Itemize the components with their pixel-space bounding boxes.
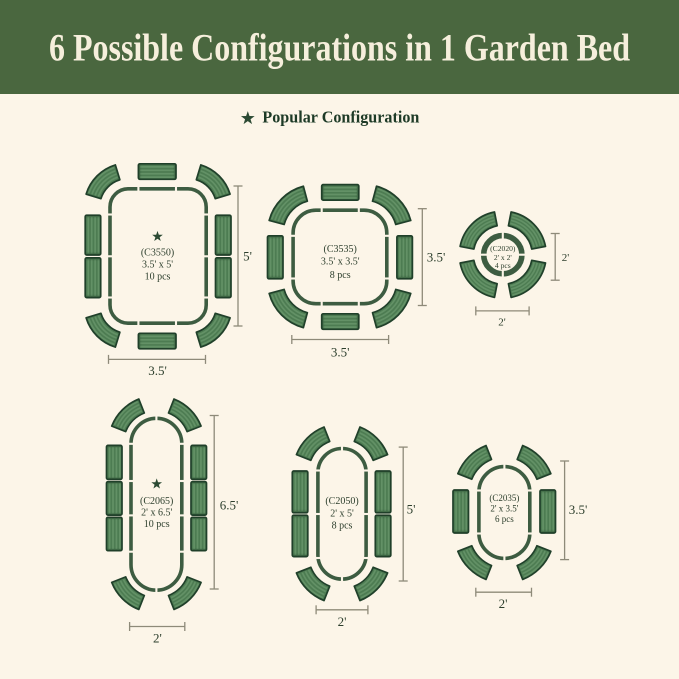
svg-text:3.5': 3.5' — [427, 250, 446, 265]
svg-text:6 Possible Configurations in 1: 6 Possible Configurations in 1 Garden Be… — [49, 26, 630, 69]
svg-text:6.5': 6.5' — [220, 497, 239, 512]
svg-text:10 pcs: 10 pcs — [144, 519, 170, 530]
svg-text:2' x 6.5': 2' x 6.5' — [141, 507, 172, 518]
svg-text:8 pcs: 8 pcs — [332, 520, 353, 531]
svg-text:2' x 5': 2' x 5' — [330, 508, 354, 519]
svg-text:6 pcs: 6 pcs — [495, 514, 514, 524]
svg-text:8 pcs: 8 pcs — [330, 270, 351, 281]
svg-text:3.5' x 5': 3.5' x 5' — [142, 259, 173, 270]
svg-text:4 pcs: 4 pcs — [495, 261, 511, 270]
svg-text:(C2050): (C2050) — [325, 496, 358, 507]
svg-text:2': 2' — [338, 614, 347, 629]
svg-text:3.5': 3.5' — [331, 344, 350, 359]
svg-text:2': 2' — [499, 596, 508, 611]
svg-text:10 pcs: 10 pcs — [145, 271, 171, 282]
svg-text:(C3550): (C3550) — [141, 247, 174, 258]
svg-text:(C2035): (C2035) — [489, 493, 519, 503]
svg-text:2' x 3.5': 2' x 3.5' — [490, 503, 518, 513]
svg-text:3.5' x 3.5': 3.5' x 3.5' — [321, 256, 360, 267]
svg-text:5': 5' — [407, 501, 416, 516]
svg-text:(C3535): (C3535) — [324, 244, 357, 255]
svg-text:5': 5' — [243, 248, 252, 263]
svg-text:Popular Configuration: Popular Configuration — [262, 108, 420, 127]
svg-text:2': 2' — [498, 317, 506, 329]
svg-text:3.5': 3.5' — [569, 502, 588, 517]
svg-text:2': 2' — [562, 252, 570, 264]
svg-text:3.5': 3.5' — [148, 363, 167, 378]
svg-text:2': 2' — [153, 630, 162, 645]
svg-text:(C2065): (C2065) — [140, 496, 173, 507]
svg-text:(C2020): (C2020) — [490, 244, 516, 253]
